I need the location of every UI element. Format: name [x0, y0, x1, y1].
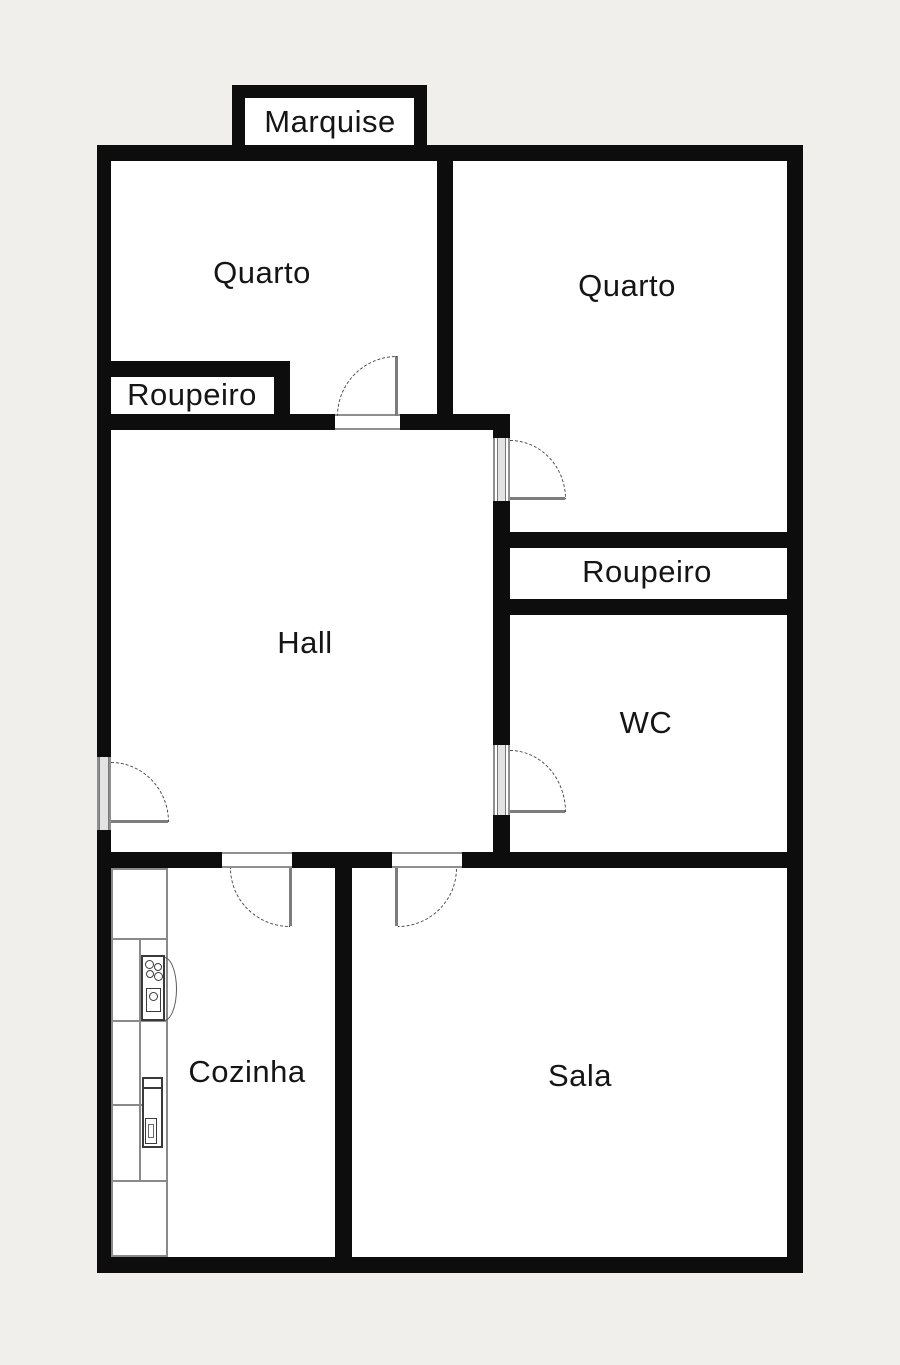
sink-top-line — [144, 1087, 161, 1089]
wall-quartos-divider — [437, 161, 453, 414]
wall-roupeiro-right-top — [493, 532, 803, 548]
stove — [141, 955, 165, 1021]
floor-plan: Marquise Quarto Quarto Roupeiro Hall Rou… — [0, 0, 900, 1365]
stove-burner — [146, 970, 154, 978]
stove-burner — [154, 963, 162, 971]
wall-top — [97, 145, 803, 161]
room-label-roupeiro-left: Roupeiro — [127, 377, 257, 413]
room-label-wc: WC — [620, 705, 673, 741]
room-label-quarto-left: Quarto — [213, 255, 311, 291]
wall-bottom — [97, 1257, 803, 1273]
cozinha-door-opening — [222, 852, 292, 868]
room-label-quarto-right: Quarto — [578, 268, 676, 304]
stove-oven — [146, 988, 161, 1012]
wc-door-jamb — [497, 745, 506, 815]
kitchen-sink — [142, 1077, 163, 1148]
wall-left-lower — [97, 830, 111, 1273]
wall-right — [787, 145, 803, 1273]
quarto-right-door-jamb — [497, 438, 506, 501]
wall-left-upper — [97, 145, 111, 757]
wall-quarto-left-bottom — [97, 361, 290, 377]
sink-basin — [145, 1118, 157, 1144]
oven-burner — [149, 992, 158, 1001]
wall-roupeiro-right-bottom — [493, 599, 803, 615]
wall-hall-wc-divider-c — [493, 815, 510, 852]
room-label-sala: Sala — [548, 1058, 612, 1094]
room-label-cozinha: Cozinha — [188, 1054, 305, 1090]
entry-door-slab — [99, 757, 109, 830]
counter-divider-h3 — [111, 1104, 142, 1106]
stove-burner — [154, 972, 163, 981]
room-label-roupeiro-right: Roupeiro — [582, 554, 712, 590]
room-label-hall: Hall — [277, 625, 332, 661]
sala-door-opening — [392, 852, 462, 868]
wall-hall-wc-divider-a — [493, 414, 510, 438]
stove-burner — [145, 960, 154, 969]
room-label-marquise: Marquise — [264, 104, 396, 140]
wall-hall-top-a — [97, 414, 335, 430]
wall-hall-bottom-c — [462, 852, 803, 868]
wall-hall-bottom-a — [97, 852, 222, 868]
sink-basin-inner — [148, 1124, 154, 1138]
quarto-left-door-opening — [335, 414, 400, 430]
wall-cozinha-sala-divider — [335, 852, 352, 1273]
